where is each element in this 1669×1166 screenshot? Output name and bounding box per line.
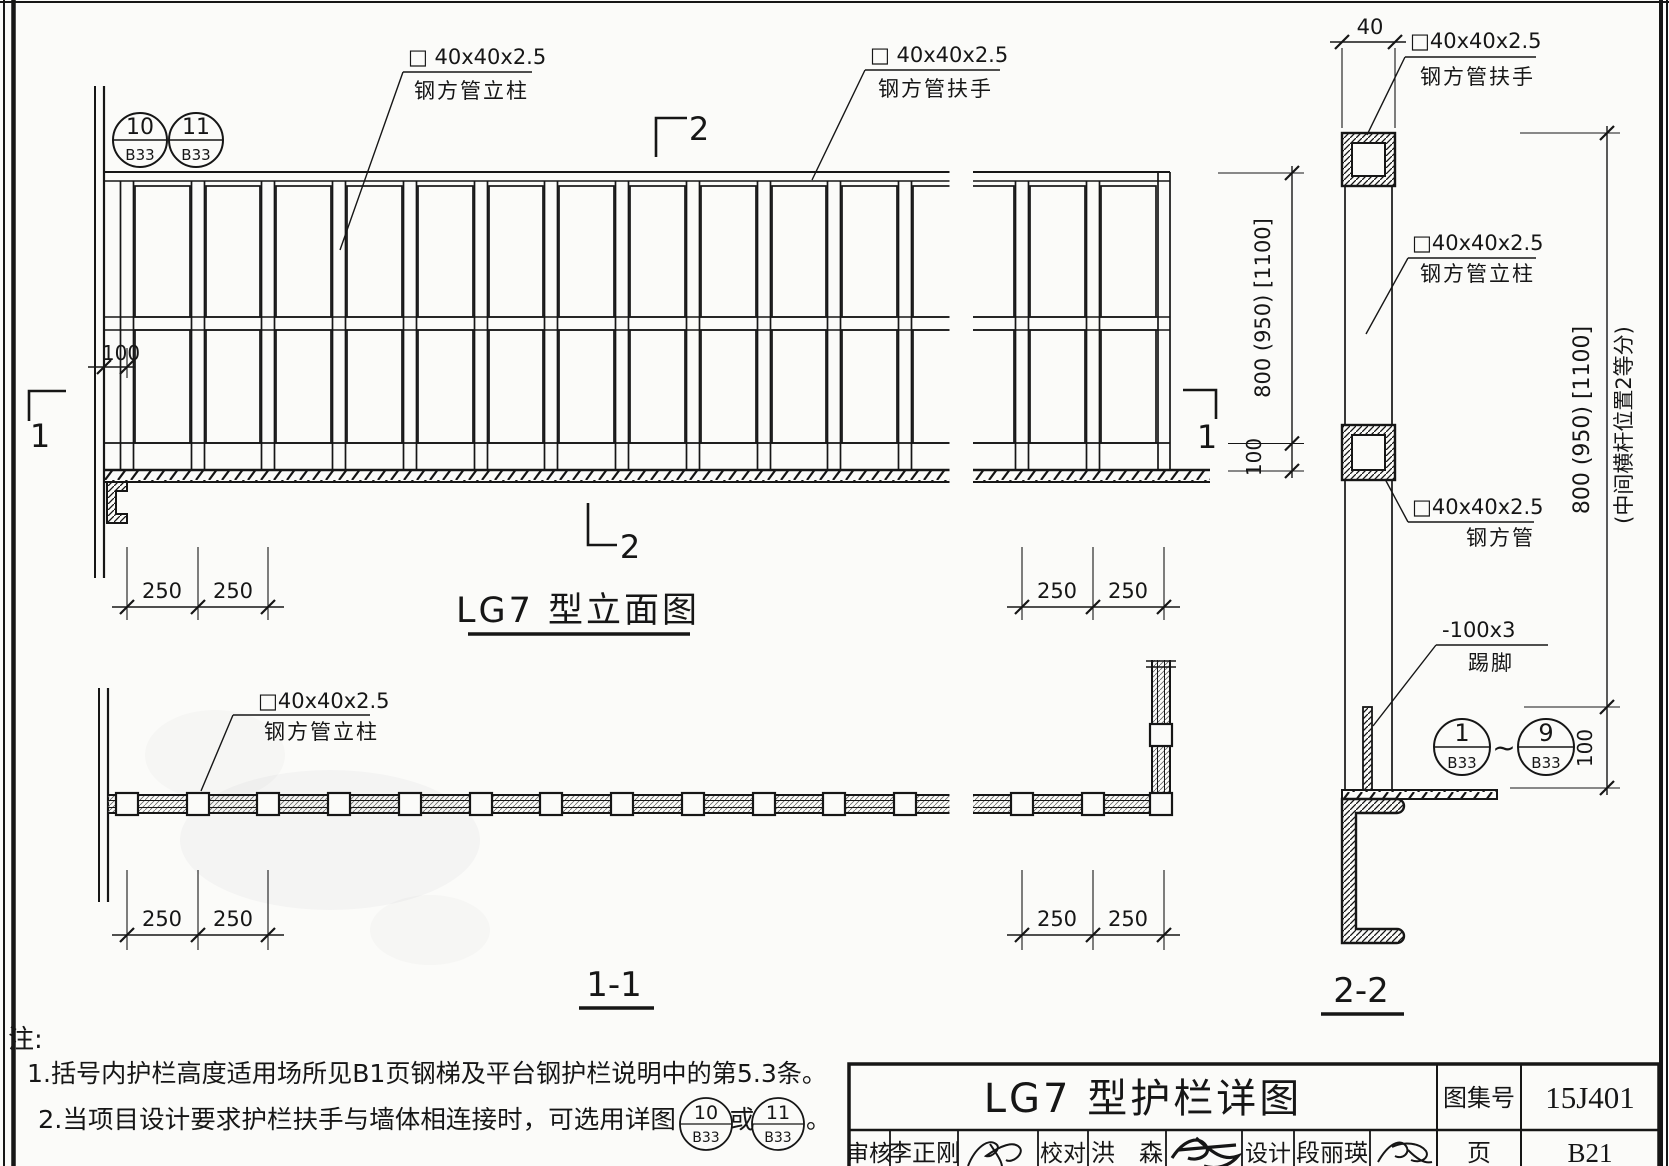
dim-label: 250	[213, 907, 253, 931]
panel-opening	[630, 330, 685, 443]
reviewer-name: 李正刚	[888, 1139, 960, 1166]
checker-signature	[1172, 1138, 1238, 1166]
callout-text: 钢方管扶手	[878, 77, 993, 101]
note-2-or: 或	[729, 1105, 754, 1134]
section-marker-label: 1	[30, 417, 50, 455]
callout-text: □40x40x2.5	[1412, 495, 1544, 519]
detail-number: 11	[182, 115, 210, 140]
panel-opening	[276, 186, 331, 317]
checker-label: 校对	[1040, 1141, 1086, 1166]
callout-text: □40x40x2.5	[258, 689, 390, 713]
panel-opening	[1030, 330, 1085, 443]
tilde: ~	[1492, 731, 1515, 764]
panel-opening	[276, 330, 331, 443]
plan-post-square	[328, 793, 350, 815]
atlas-number: 15J401	[1545, 1080, 1635, 1115]
dim-label-note: (中间横杆位置2等分)	[1612, 326, 1636, 524]
page-label: 页	[1467, 1139, 1491, 1166]
reviewer-signature	[968, 1142, 1021, 1166]
elevation-view	[95, 86, 1210, 578]
designer-signature	[1378, 1143, 1432, 1163]
detail-sheet: B33	[1531, 754, 1560, 772]
panel-opening	[772, 186, 826, 317]
callout-text: 钢方管立柱	[1420, 262, 1535, 286]
section-marker-labels: 1 1 2 2	[30, 110, 1217, 566]
section-marker-label: 2	[620, 528, 640, 566]
panel-opening	[559, 330, 614, 443]
callout-text: □ 40x40x2.5	[408, 45, 546, 69]
panel-opening	[630, 186, 685, 317]
plan-post-square	[257, 793, 279, 815]
floor-plate-section	[1342, 790, 1497, 799]
callout-text: □40x40x2.5	[1410, 29, 1542, 53]
callout-text: □40x40x2.5	[1412, 231, 1544, 255]
panel-opening	[135, 330, 190, 443]
panel-opening	[489, 330, 543, 443]
callout-text: 钢方管立柱	[414, 79, 529, 103]
note-2-period: 。	[806, 1105, 831, 1134]
panel-opening	[489, 186, 543, 317]
plan-post-square	[116, 793, 138, 815]
plan-post-square	[611, 793, 633, 815]
checker-name: 洪 森	[1091, 1139, 1163, 1166]
designer-name: 段丽瑛	[1296, 1139, 1368, 1166]
dim-label: 250	[142, 907, 182, 931]
dim-label: 250	[142, 579, 182, 603]
drawing-sheet: 100 250 250 250 250 250 250 250 250 40 8…	[0, 0, 1669, 1166]
notes: 注: 1.括号内护栏高度适用场所见B1页钢梯及平台钢护栏说明中的第5.3条。 2…	[8, 1025, 831, 1150]
dim-label: 100	[1242, 438, 1266, 476]
dim-label-height: 800 (950) [1100]	[1570, 326, 1595, 514]
dim-label: 250	[1037, 907, 1077, 931]
dim-label: 250	[1108, 907, 1148, 931]
note-2: 2.当项目设计要求护栏扶手与墙体相连接时，可选用详图	[38, 1105, 676, 1134]
panel-opening	[206, 330, 260, 443]
plan-post-square	[1011, 793, 1033, 815]
detail-sheet: B33	[181, 146, 210, 164]
plan-post-square	[470, 793, 492, 815]
plan-post-square	[823, 793, 845, 815]
guardrail-detail-drawing: 100 250 250 250 250 250 250 250 250 40 8…	[0, 0, 1669, 1166]
dim-label: 250	[1037, 579, 1077, 603]
plan-post-square	[894, 793, 916, 815]
section-1-title: 1-1	[586, 965, 642, 1005]
section-2-2	[1330, 42, 1497, 943]
plan-post-square	[540, 793, 562, 815]
callout-text: 钢方管立柱	[264, 720, 379, 744]
dim-label-height: 800 (950) [1100]	[1251, 218, 1275, 398]
dim-label: 250	[213, 579, 253, 603]
plan-post-square	[1082, 793, 1104, 815]
dim-label: 100	[102, 341, 140, 365]
panel-opening	[418, 330, 473, 443]
panel-opening	[135, 186, 190, 317]
atlas-label: 图集号	[1443, 1084, 1515, 1112]
detail-sheet: B33	[1447, 754, 1476, 772]
designer-label: 设计	[1245, 1141, 1291, 1166]
detail-number: 11	[766, 1102, 790, 1124]
callout-text: -100x3	[1442, 618, 1515, 642]
dim-label: 100	[1573, 729, 1597, 767]
detail-sheet: B33	[125, 146, 154, 164]
sheet-title: LG7 型护栏详图	[984, 1076, 1302, 1122]
plan-post-square	[187, 793, 209, 815]
reviewer-label: 审核	[846, 1141, 892, 1166]
panel-opening	[1101, 330, 1156, 443]
panel-opening	[1030, 186, 1085, 317]
detail-number: 10	[694, 1102, 718, 1124]
detail-bubbles: 10 B33 11 B33	[113, 113, 223, 167]
detail-number: 9	[1538, 719, 1553, 747]
callout-text: 钢方管	[1466, 526, 1535, 550]
edge-channel	[107, 482, 127, 523]
section-marker-label: 2	[689, 110, 709, 148]
notes-label: 注:	[8, 1025, 43, 1055]
panel-opening	[842, 186, 897, 317]
title-block: LG7 型护栏详图 图集号 15J401 审核 李正刚 校对 洪 森 设计 段丽…	[846, 1064, 1659, 1166]
detail-number: 10	[126, 115, 154, 140]
plan-post-square	[753, 793, 775, 815]
toe-plate-section	[1363, 707, 1372, 790]
channel-section	[1342, 799, 1404, 943]
elevation-title: LG7 型立面图	[456, 591, 700, 631]
detail-sheet: B33	[764, 1130, 791, 1146]
detail-range-bubbles: 1 B33 9 B33 ~	[1434, 719, 1574, 775]
plan-post-square	[1150, 793, 1172, 815]
panel-opening	[559, 186, 614, 317]
panel-opening	[701, 330, 756, 443]
elevation-openings	[135, 186, 1156, 443]
panel-opening	[772, 330, 826, 443]
section-marker-label: 1	[1197, 418, 1217, 456]
plan-post-square	[399, 793, 421, 815]
panel-opening	[1101, 186, 1156, 317]
detail-sheet: B33	[692, 1130, 719, 1146]
detail-number: 1	[1454, 719, 1469, 747]
scan-artifacts	[145, 710, 490, 965]
callout-text: 踢脚	[1468, 651, 1514, 675]
note-1: 1.括号内护栏高度适用场所见B1页钢梯及平台钢护栏说明中的第5.3条。	[27, 1059, 827, 1088]
plan-post-square	[1150, 724, 1172, 746]
drawing-breaks	[950, 138, 974, 823]
section-2-title: 2-2	[1333, 971, 1389, 1011]
panel-opening	[206, 186, 260, 317]
plan-post-square	[682, 793, 704, 815]
panel-opening	[842, 330, 897, 443]
panel-opening	[347, 330, 402, 443]
dim-label: 40	[1357, 15, 1384, 39]
callout-text: 钢方管扶手	[1420, 65, 1535, 89]
callout-text: □ 40x40x2.5	[870, 43, 1008, 67]
dim-label: 250	[1108, 579, 1148, 603]
page-number: B21	[1567, 1138, 1612, 1166]
panel-opening	[418, 186, 473, 317]
panel-opening	[701, 186, 756, 317]
floor-plate-hatch	[104, 470, 1210, 482]
